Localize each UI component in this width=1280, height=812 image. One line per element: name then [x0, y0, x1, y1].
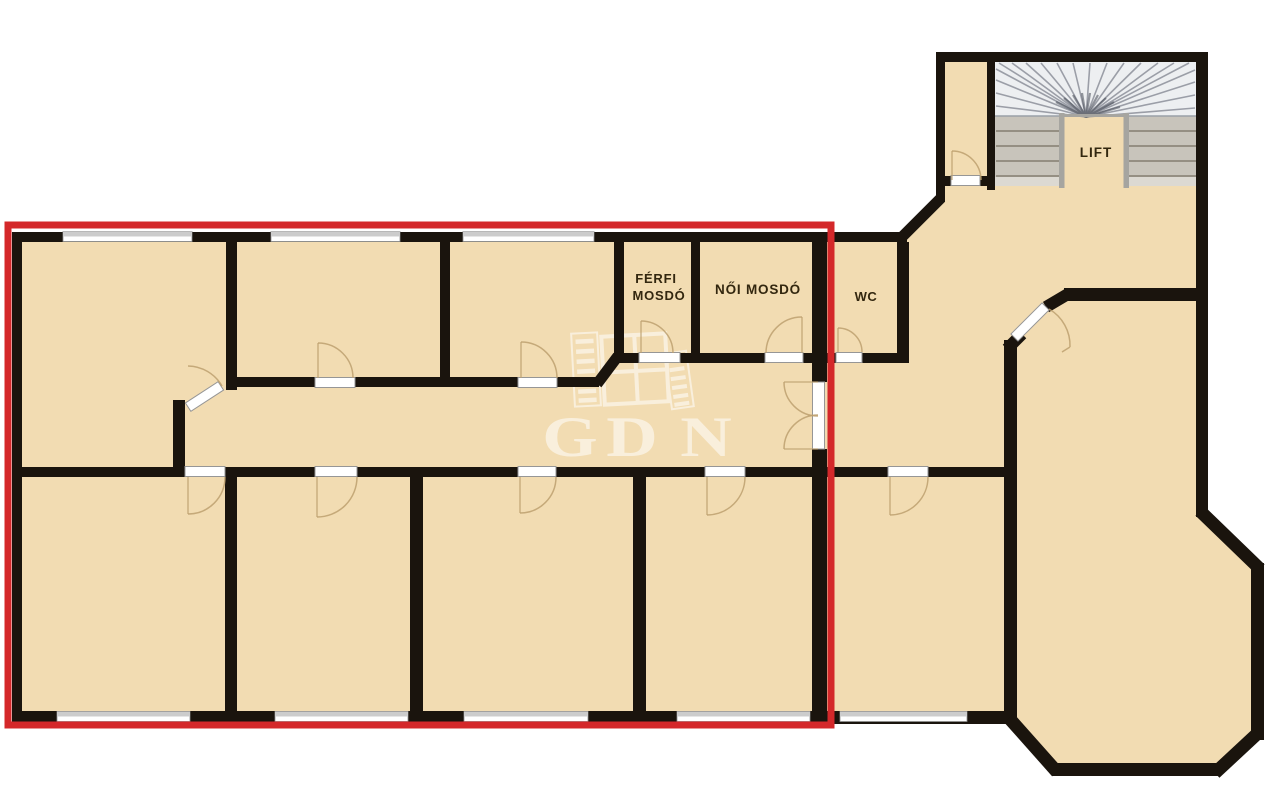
svg-text:G: G: [542, 406, 597, 469]
svg-text:WC: WC: [855, 289, 878, 304]
svg-text:LIFT: LIFT: [1080, 145, 1113, 160]
svg-text:MOSDÓ: MOSDÓ: [632, 288, 685, 303]
svg-text:NŐI MOSDÓ: NŐI MOSDÓ: [715, 282, 801, 297]
svg-text:D: D: [606, 406, 657, 469]
svg-text:FÉRFI: FÉRFI: [635, 271, 677, 286]
svg-text:N: N: [680, 406, 731, 469]
